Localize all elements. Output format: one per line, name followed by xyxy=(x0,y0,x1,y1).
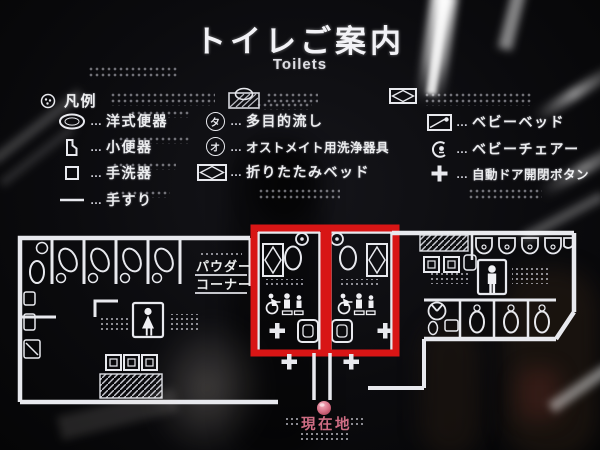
legend-title: 凡例 xyxy=(64,90,97,111)
man-pictogram xyxy=(478,260,506,294)
basin-fixture xyxy=(298,320,318,342)
toilet-fixture xyxy=(285,247,301,270)
legend-item-baby-chair: … ベビーチェアー xyxy=(424,139,580,159)
floor-plan-map: パウダー コーナー xyxy=(0,222,600,450)
baby-bed-icon xyxy=(424,113,454,132)
basin-fixture xyxy=(332,320,352,342)
ostomate-icon: オ xyxy=(202,137,228,156)
toilet-fixture xyxy=(470,305,549,333)
page-title-english: Toilets xyxy=(0,56,600,73)
mens-toilet-area xyxy=(392,233,574,339)
accessibility-pictograms xyxy=(267,293,304,314)
toilet-guide-sign-photo: トイレご案内 Toilets 凡例 … 洋式便器 … 小便器 xyxy=(0,0,600,450)
braille-map xyxy=(430,270,470,284)
wall-fixtures xyxy=(24,292,40,358)
legend-item-urinal: … 小便器 xyxy=(56,137,153,157)
urinals xyxy=(476,238,573,254)
hand-basin-icon xyxy=(56,165,88,181)
legend-label: 手すり xyxy=(106,190,153,210)
hatched-area xyxy=(100,374,162,398)
folding-bed-symbol xyxy=(263,244,283,276)
hand-basins xyxy=(106,355,157,370)
door-button-icon xyxy=(424,164,454,183)
braille-map xyxy=(198,252,242,258)
woman-pictogram xyxy=(133,303,163,337)
legend-label: 折りたたみベッド xyxy=(246,162,370,182)
handrail-icon xyxy=(56,196,88,204)
multipurpose-sink-icon: タ xyxy=(202,112,228,131)
legend-label: ベビーチェアー xyxy=(472,139,580,159)
powder-corner-label: パウダー コーナー xyxy=(195,252,252,293)
legend-item-hand-basin: … 手洗器 xyxy=(56,163,153,183)
legend-item-ostomate: オ … オストメイト用洗浄器具 xyxy=(202,137,389,156)
western-toilet-icon xyxy=(56,113,88,130)
legend-label: 多目的流し xyxy=(246,111,324,131)
current-location-dot xyxy=(317,401,331,415)
legend-item-baby-bed: … ベビーベッド xyxy=(424,112,565,132)
hatched-area xyxy=(420,235,468,251)
legend-item-western-toilet: … 洋式便器 xyxy=(56,111,168,131)
photographer-head-silhouette xyxy=(253,148,315,226)
braille-map xyxy=(300,432,348,440)
baby-chair-icon xyxy=(424,140,454,159)
legend-header: 凡例 xyxy=(38,90,97,111)
legend-item-multipurpose-sink: タ … 多目的流し xyxy=(202,111,324,131)
toilet-fixture xyxy=(340,247,356,270)
multifunction-toilet-room-2 xyxy=(330,232,393,353)
folding-bed-icon xyxy=(196,163,228,182)
door-button-symbol xyxy=(270,323,286,339)
page-title: トイレご案内 xyxy=(0,16,600,61)
braille-legend-header xyxy=(110,92,215,106)
legend-label: 自動ドア開閉ボタン xyxy=(472,164,589,183)
braille-map xyxy=(512,268,550,284)
legend-label: 手洗器 xyxy=(106,163,153,183)
braille-header-right xyxy=(424,92,532,106)
urinal-icon xyxy=(56,138,88,157)
accessibility-pictograms xyxy=(339,293,376,314)
legend-bullet-icon xyxy=(38,93,58,109)
hand-basins xyxy=(424,255,476,272)
braille-map xyxy=(350,416,366,425)
braille-strip xyxy=(258,188,340,200)
legend-label: 洋式便器 xyxy=(106,111,168,131)
multifunction-toilet-room-1 xyxy=(258,232,320,353)
braille-map xyxy=(338,279,378,286)
svg-text:コーナー: コーナー xyxy=(196,277,252,292)
svg-text:パウダー: パウダー xyxy=(196,259,252,274)
legend-label: ベビーベッド xyxy=(472,112,565,132)
current-location-label: 現在地 xyxy=(301,415,352,433)
braille-strip xyxy=(256,102,312,110)
braille-map xyxy=(170,314,200,332)
current-location-marker: 現在地 xyxy=(284,401,366,440)
legend-label: 小便器 xyxy=(106,137,153,157)
legend-item-handrail: … 手すり xyxy=(56,190,153,210)
folding-bed-symbol xyxy=(367,244,387,276)
braille-map xyxy=(284,416,298,425)
folding-bed-small-icon xyxy=(388,87,418,110)
braille-strip xyxy=(468,188,542,200)
braille-map xyxy=(266,279,306,286)
legend-item-door-button: … 自動ドア開閉ボタン xyxy=(424,164,589,183)
legend-label: オストメイト用洗浄器具 xyxy=(246,137,389,156)
braille-map xyxy=(101,316,129,332)
legend-item-folding-bed: … 折りたたみベッド xyxy=(196,162,370,182)
corner-fixtures xyxy=(429,303,459,335)
